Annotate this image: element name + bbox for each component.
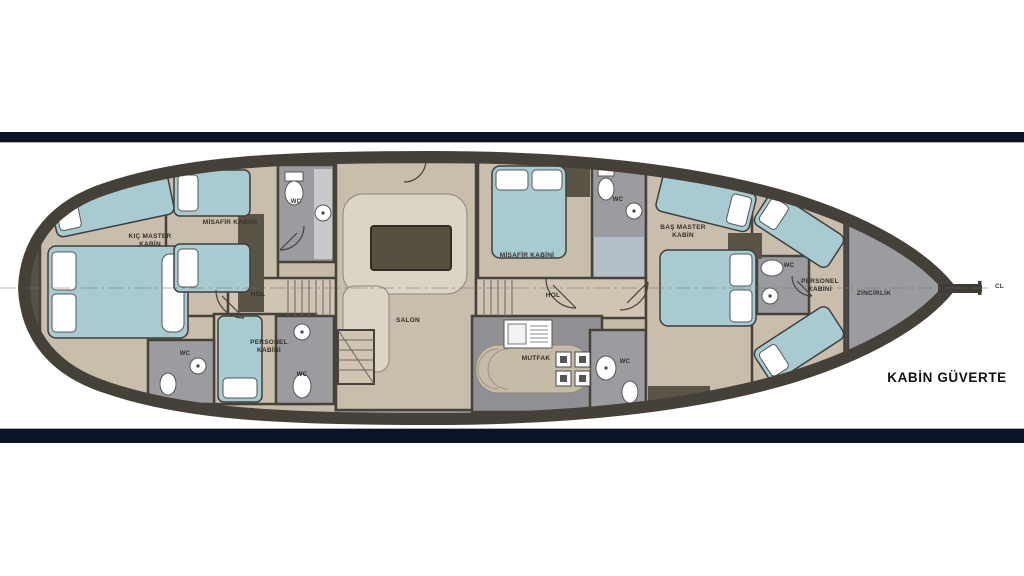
room-label-wc-top-left: WC: [286, 199, 306, 207]
bed-aft-master-double: [48, 246, 188, 338]
room-label-hall-left: HOL: [243, 291, 273, 299]
room-label-guest-left: MİSAFİR KABİNİ: [188, 219, 272, 227]
bed-guest-right-double: [492, 166, 566, 258]
room-label-guest-right: MİSAFİR KABİNİ: [486, 252, 568, 260]
room-label-wc-bow: WC: [779, 263, 799, 271]
room-label-wc-bottom-left-b: WC: [292, 372, 312, 380]
bed-crew-left: [218, 316, 262, 402]
deck-title: KABİN GÜVERTE: [882, 370, 1012, 385]
yacht-floorplan-graphic: [0, 0, 1024, 576]
room-label-wc-bottom-left-a: WC: [175, 351, 195, 359]
room-label-bow-master: BAŞ MASTER KABİN: [641, 224, 725, 241]
galley-sink: [504, 320, 552, 348]
room-label-crew-left: PERSONEL KABİNİ: [240, 339, 298, 356]
room-label-galley: MUTFAK: [506, 355, 566, 363]
galley-counter: [476, 345, 590, 393]
room-label-crew-right: PERSONEL KABİNİ: [791, 278, 849, 295]
room-label-wc-galley: WC: [615, 359, 635, 367]
shower-top-right: [594, 237, 644, 277]
bed-guest-left-1: [174, 170, 250, 216]
salon-table: [371, 226, 451, 270]
salon-stairs: [338, 330, 374, 384]
room-label-aft-master: KIÇ MASTER KABİN: [108, 233, 192, 250]
centerline-label: CL: [995, 283, 1004, 290]
room-wc-bottom-left-a: [148, 340, 214, 404]
room-label-hall-right: HOL: [538, 292, 568, 300]
room-label-chain-locker: ZİNCİRLİK: [845, 290, 903, 298]
deck-plan-page: KIÇ MASTER KABİN MİSAFİR KABİNİ WC HOL P…: [0, 0, 1024, 576]
room-label-salon: SALON: [378, 317, 438, 325]
bed-guest-left-2: [174, 244, 250, 292]
room-label-wc-top-right: WC: [608, 197, 628, 205]
